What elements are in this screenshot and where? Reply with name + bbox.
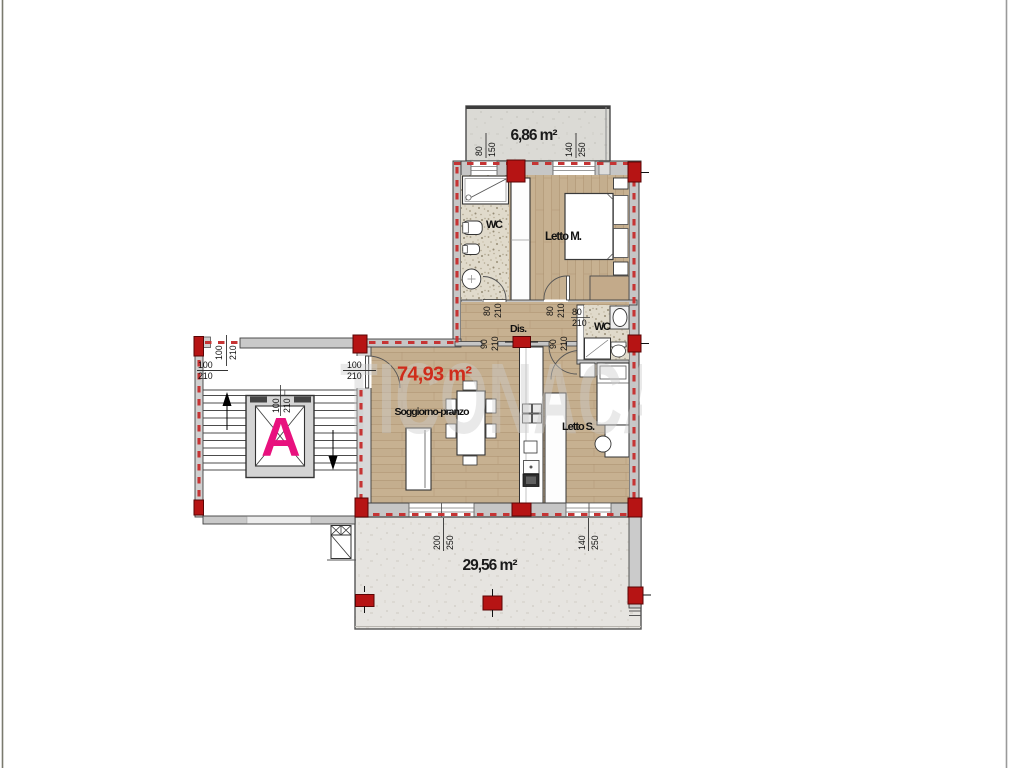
svg-text:140: 140 (577, 535, 587, 550)
svg-text:80: 80 (474, 146, 484, 156)
svg-text:90: 90 (479, 339, 489, 349)
svg-text:29,56 m²: 29,56 m² (463, 557, 518, 574)
svg-text:90: 90 (548, 339, 558, 349)
svg-text:140: 140 (564, 142, 574, 157)
svg-text:100: 100 (198, 360, 213, 370)
svg-text:200: 200 (432, 535, 442, 550)
svg-text:WC: WC (594, 321, 611, 333)
svg-text:250: 250 (590, 535, 600, 550)
svg-text:Letto M.: Letto M. (545, 231, 582, 243)
svg-text:Letto S.: Letto S. (562, 421, 595, 433)
svg-text:74,93 m²: 74,93 m² (397, 364, 472, 386)
svg-text:150: 150 (487, 142, 497, 157)
svg-text:210: 210 (559, 336, 569, 351)
svg-text:250: 250 (445, 535, 455, 550)
svg-text:100: 100 (271, 398, 281, 413)
svg-text:Dis.: Dis. (510, 323, 527, 335)
svg-text:210: 210 (228, 345, 238, 360)
svg-text:Soggiorno-pranzo: Soggiorno-pranzo (395, 406, 470, 418)
svg-text:210: 210 (347, 371, 362, 381)
svg-text:210: 210 (490, 336, 500, 351)
svg-text:210: 210 (282, 398, 292, 413)
svg-text:250: 250 (577, 142, 587, 157)
svg-text:80: 80 (482, 306, 492, 316)
svg-text:80: 80 (545, 306, 555, 316)
svg-text:210: 210 (493, 303, 503, 318)
svg-text:6,86 m²: 6,86 m² (511, 127, 558, 144)
svg-text:210: 210 (556, 303, 566, 318)
svg-text:210: 210 (572, 318, 587, 328)
svg-text:100: 100 (214, 345, 224, 360)
svg-text:80: 80 (572, 307, 582, 317)
svg-text:100: 100 (347, 360, 362, 370)
svg-text:210: 210 (198, 371, 213, 381)
svg-text:WC: WC (486, 219, 503, 231)
